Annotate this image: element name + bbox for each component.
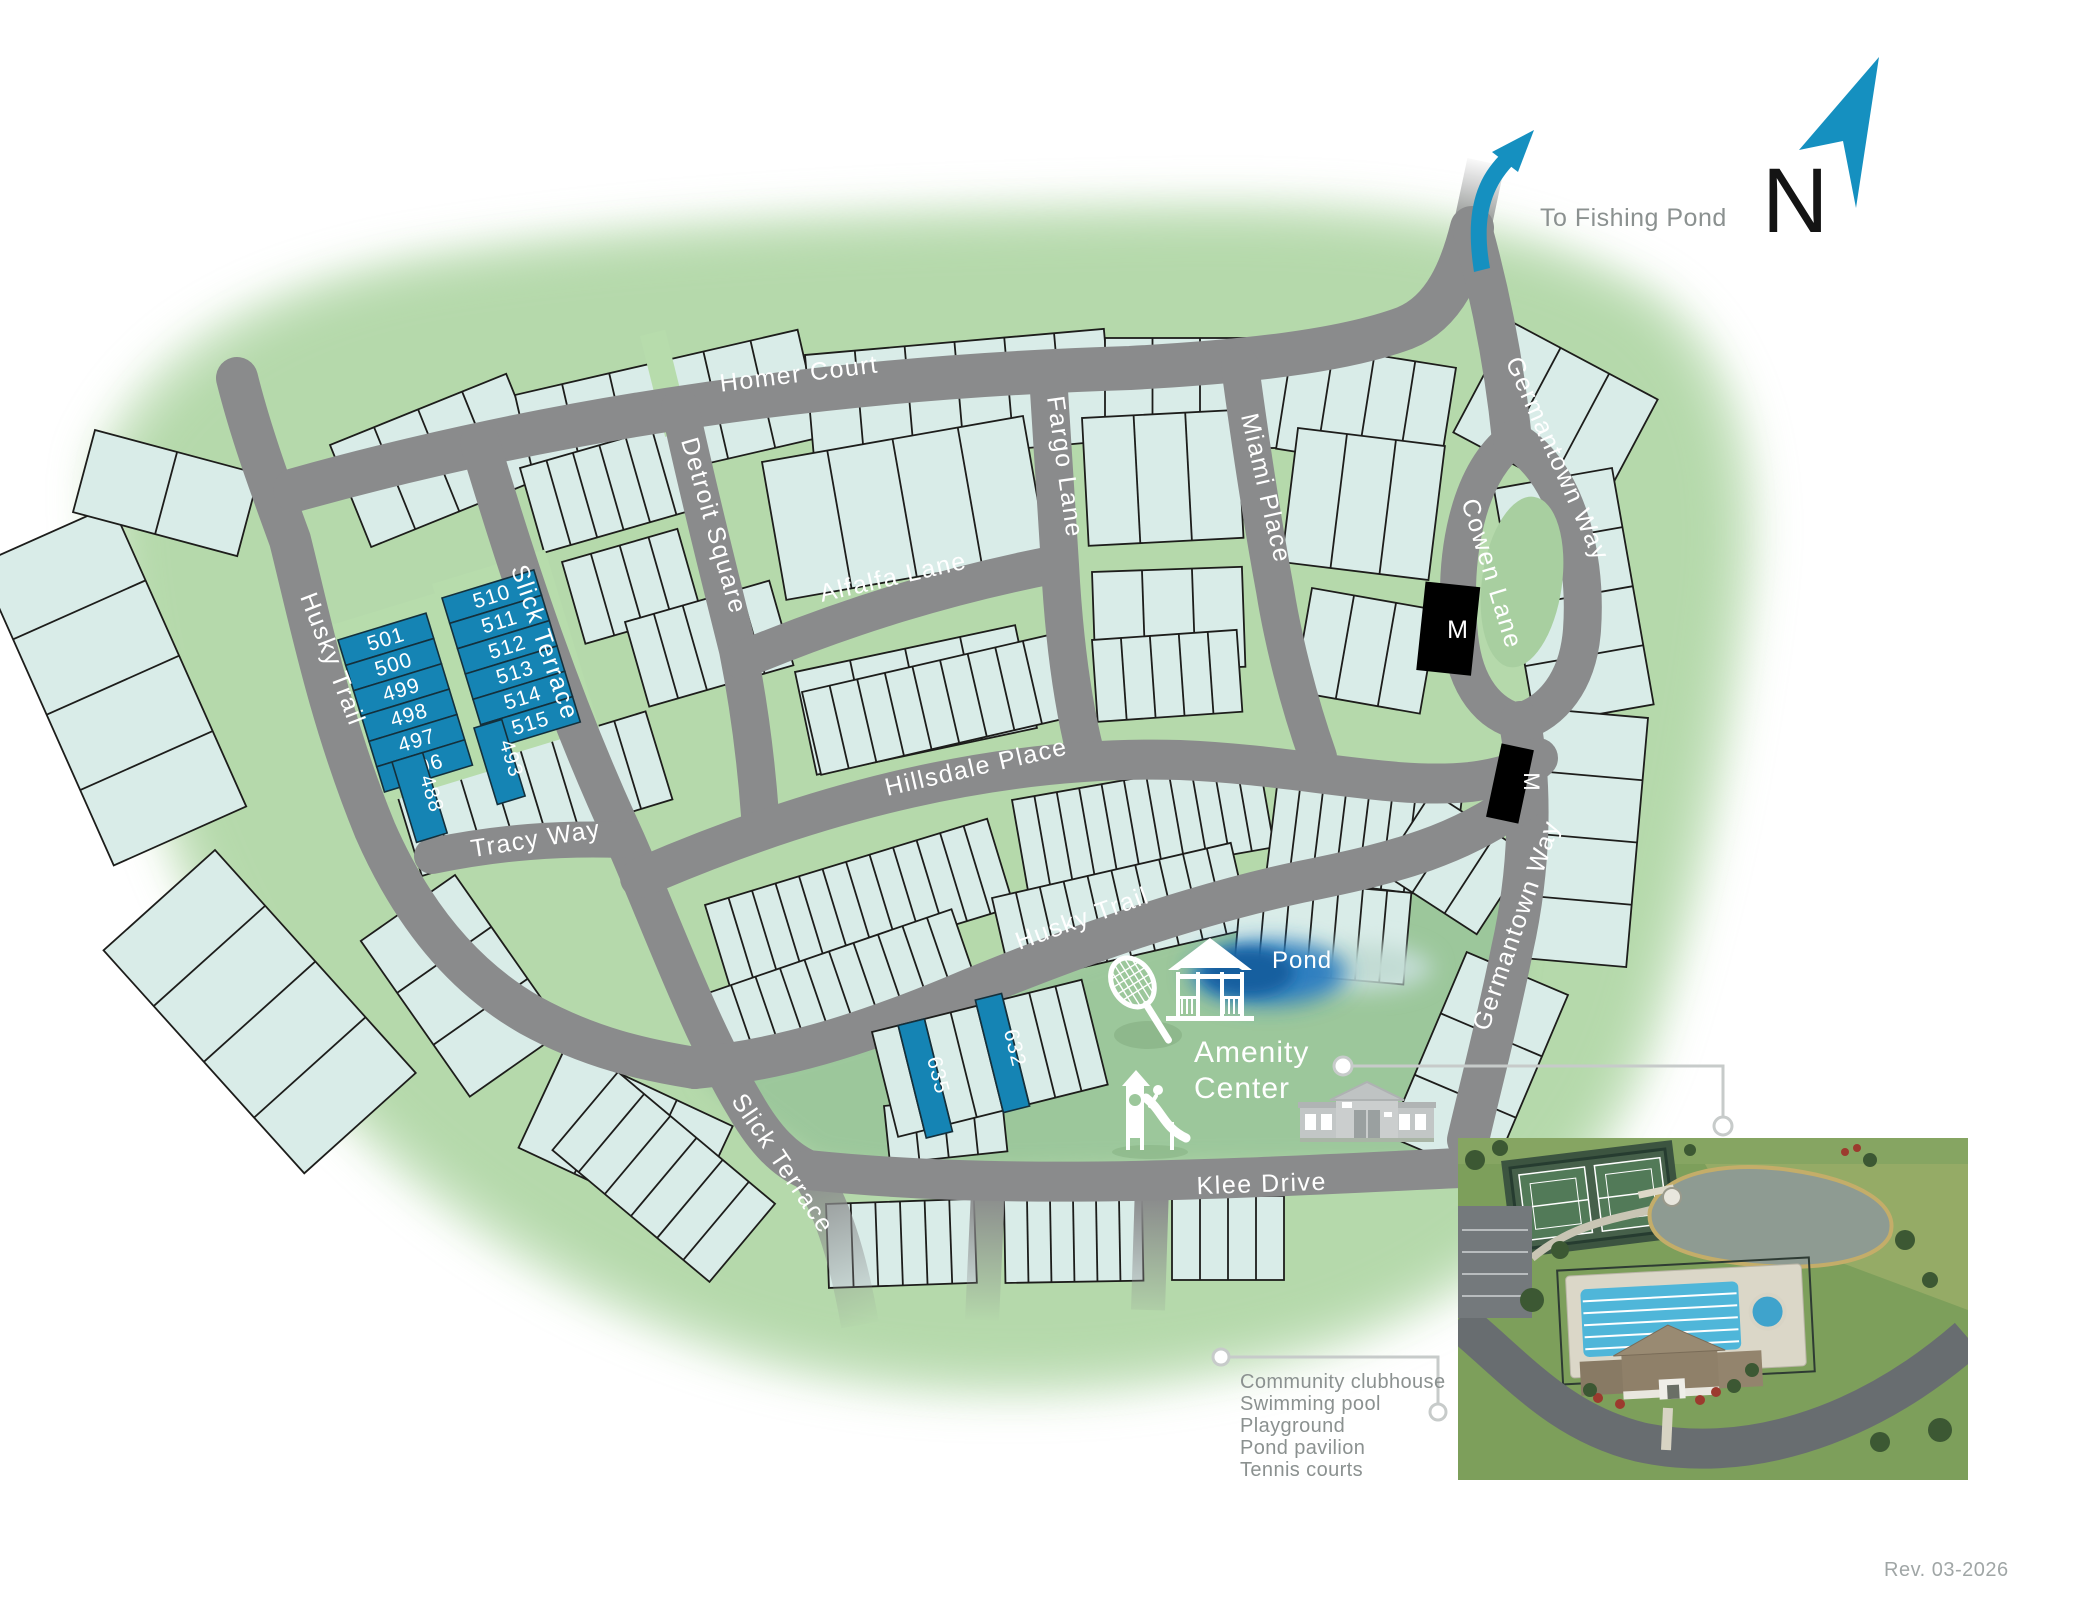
- north-label: N: [1762, 150, 1828, 252]
- legend-item: Community clubhouse: [1240, 1371, 1445, 1393]
- amenity-aerial-photo: [1458, 1138, 1968, 1480]
- north-indicator: N: [1762, 57, 1879, 252]
- amenity-center-label-line1: Amenity: [1194, 1036, 1309, 1069]
- street-label-klee-drive: Klee Drive: [1196, 1168, 1327, 1201]
- road-stub-2: [1148, 1186, 1152, 1310]
- racket-shadow: [1114, 1021, 1182, 1049]
- model-home-label: M: [1519, 772, 1544, 791]
- legend-item: Pond pavilion: [1240, 1437, 1365, 1459]
- site-map-page: 501 500 499 498 497 496 510 511 512 513 …: [0, 0, 2084, 1600]
- legend-item: Tennis courts: [1240, 1459, 1363, 1481]
- fishing-pond-label: To Fishing Pond: [1540, 204, 1727, 232]
- community-site-map: 501 500 499 498 497 496 510 511 512 513 …: [0, 0, 2084, 1600]
- photo-pavilion: [1663, 1188, 1681, 1206]
- model-home-label: M: [1447, 616, 1469, 644]
- road-klee-drive: [808, 1168, 1460, 1182]
- lot-block: [1092, 630, 1242, 722]
- revision-label: Rev. 03-2026: [1884, 1559, 2009, 1581]
- amenity-center-label-line2: Center: [1194, 1072, 1290, 1105]
- lot-block: [1004, 1197, 1143, 1283]
- legend-item: Swimming pool: [1240, 1393, 1381, 1415]
- lot-block: [1082, 410, 1243, 546]
- lot-block: [1282, 428, 1445, 580]
- legend-item: Playground: [1240, 1415, 1345, 1437]
- pond-label: Pond: [1272, 947, 1332, 974]
- lot-block: [1172, 1196, 1284, 1280]
- road-stub-1: [982, 1192, 988, 1320]
- photo-walkway: [1666, 1408, 1668, 1450]
